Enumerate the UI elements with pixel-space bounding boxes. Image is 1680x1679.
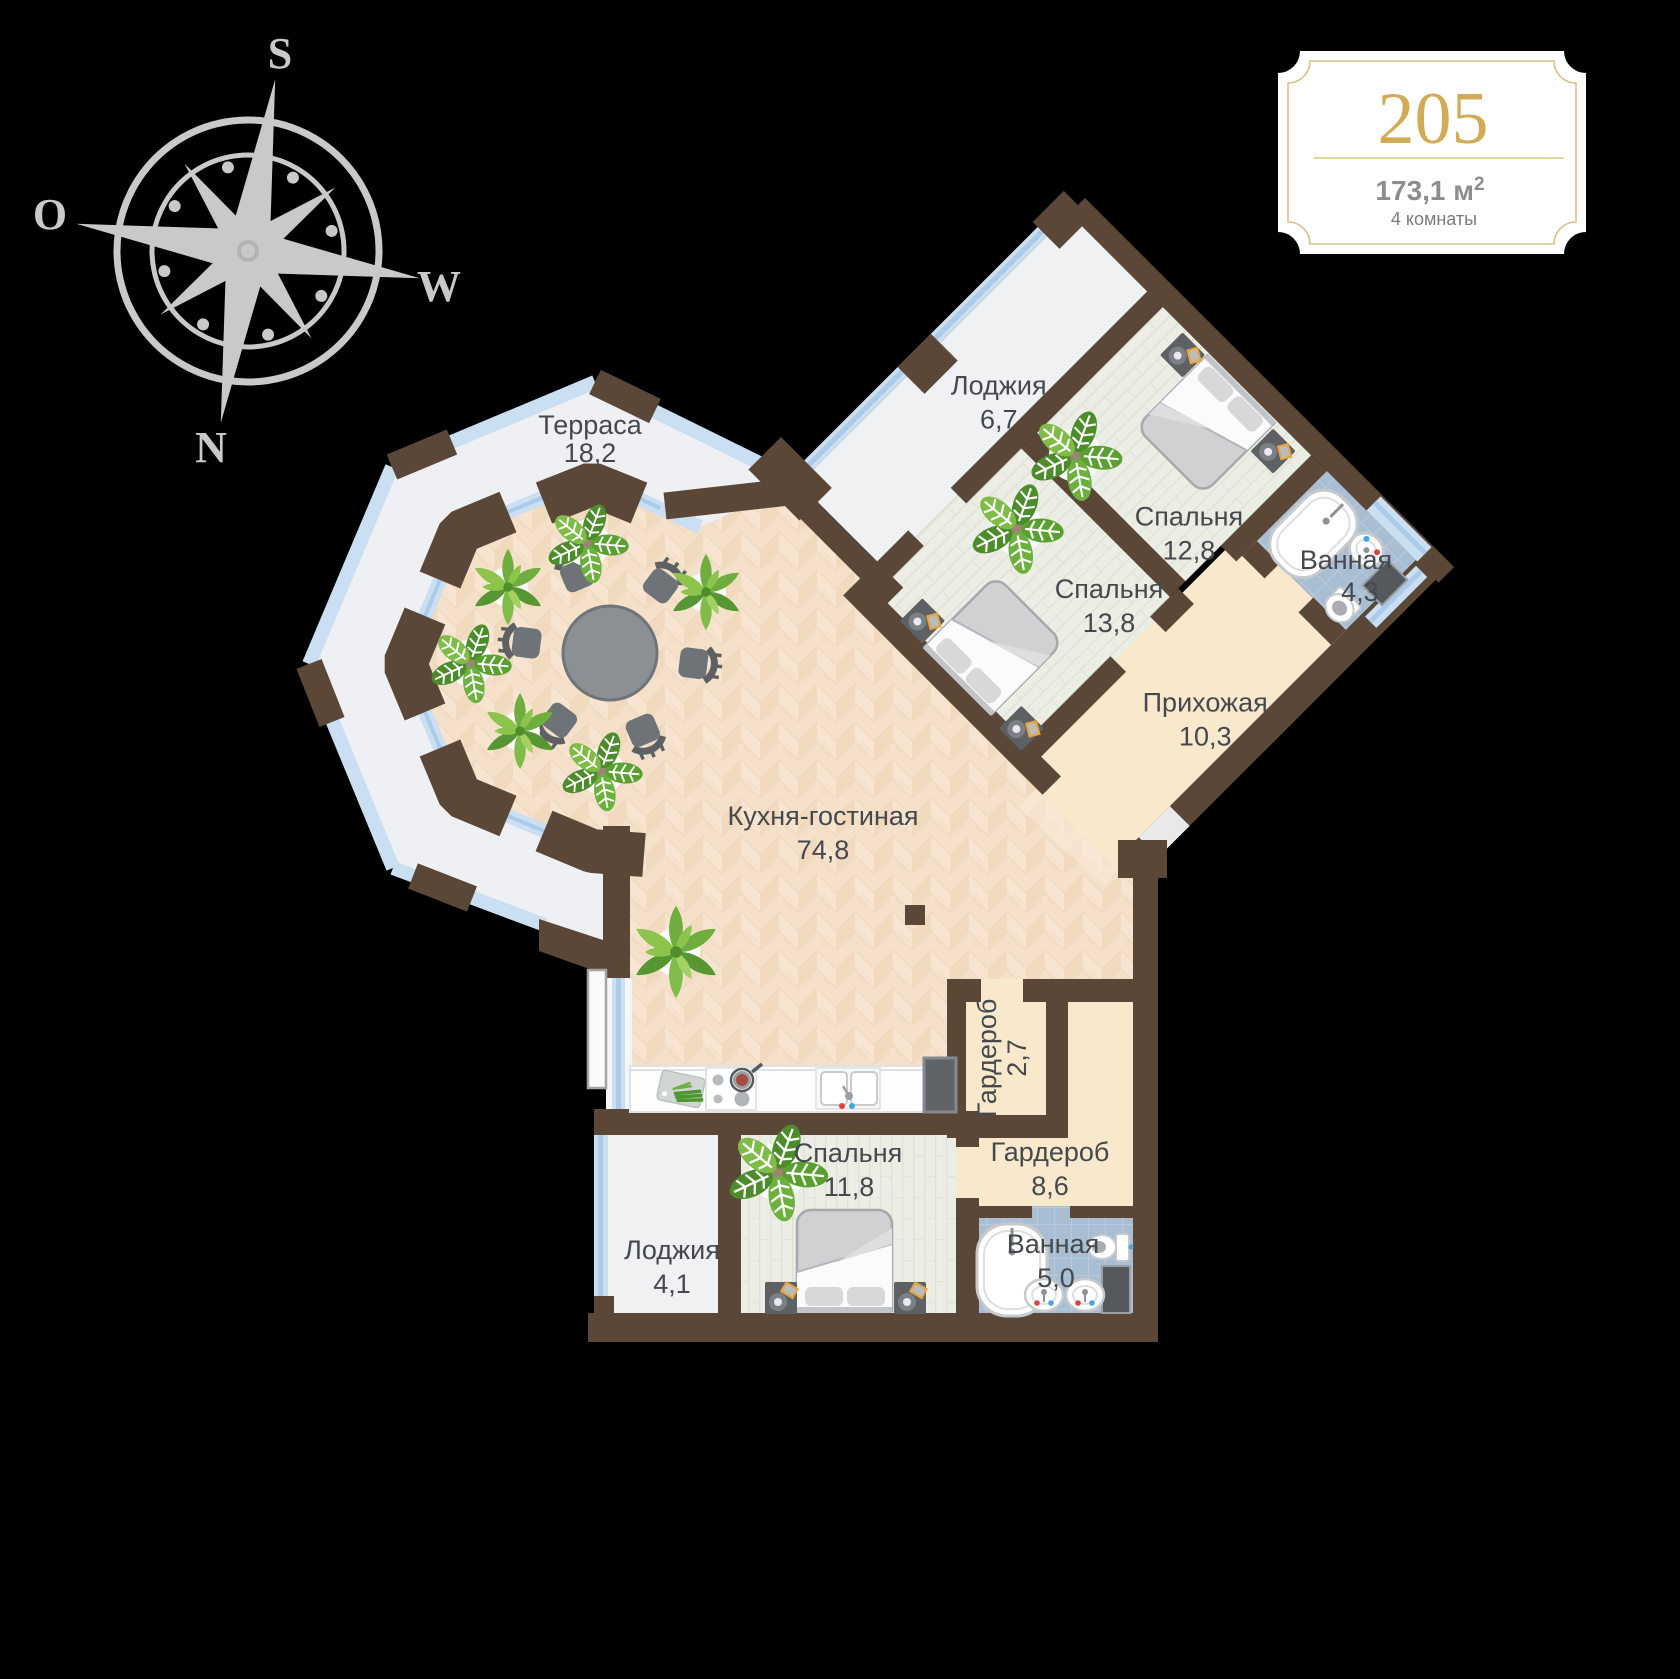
svg-text:Ванная: Ванная [1300,545,1392,575]
svg-text:205: 205 [1378,78,1489,160]
svg-text:N: N [195,423,227,472]
svg-text:18,2: 18,2 [564,438,617,468]
svg-text:2,7: 2,7 [1002,1039,1032,1077]
svg-text:13,8: 13,8 [1083,608,1136,638]
svg-text:6,7: 6,7 [980,405,1018,435]
svg-text:4 комнаты: 4 комнаты [1391,209,1477,229]
svg-text:4,3: 4,3 [1341,577,1379,607]
svg-text:Спальня: Спальня [1055,574,1164,604]
svg-text:Спальня: Спальня [794,1138,903,1168]
svg-text:Кухня-гостиная: Кухня-гостиная [727,801,918,831]
svg-text:11,8: 11,8 [824,1172,875,1202]
svg-text:74,8: 74,8 [797,835,850,865]
svg-text:Гардероб: Гардероб [972,999,1002,1118]
svg-text:W: W [417,262,461,311]
svg-text:8,6: 8,6 [1031,1171,1069,1201]
svg-text:Терраса: Терраса [538,410,643,440]
svg-text:12,8: 12,8 [1163,535,1216,565]
svg-text:O: O [33,190,67,239]
svg-text:S: S [268,29,292,78]
svg-text:5,0: 5,0 [1037,1263,1075,1293]
svg-text:Лоджия: Лоджия [951,371,1047,401]
svg-text:173,1 м2: 173,1 м2 [1375,174,1484,206]
svg-text:Лоджия: Лоджия [624,1235,720,1265]
svg-text:Ванная: Ванная [1007,1229,1099,1259]
svg-text:10,3: 10,3 [1179,721,1232,751]
svg-text:Спальня: Спальня [1135,501,1244,531]
svg-text:Прихожая: Прихожая [1143,687,1268,717]
svg-text:Гардероб: Гардероб [991,1137,1110,1167]
svg-text:4,1: 4,1 [653,1269,691,1299]
